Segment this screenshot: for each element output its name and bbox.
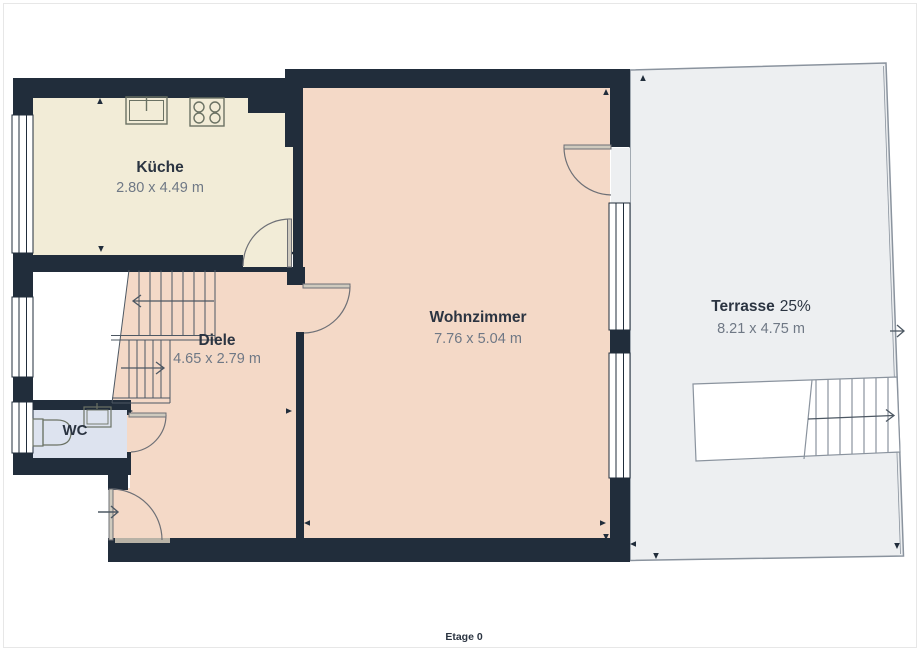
- terrace-door-floor: [611, 148, 630, 203]
- diele-label: Diele: [198, 332, 235, 349]
- diele-floor: [130, 272, 296, 538]
- wall-kueche-wohnzimmer: [293, 113, 303, 267]
- wall-kueche-notch: [248, 98, 293, 113]
- wall-left-3: [13, 377, 33, 402]
- wc-label: WC: [63, 422, 88, 439]
- kueche-dims: 2.80 x 4.49 m: [116, 180, 204, 196]
- terrasse-dims: 8.21 x 4.75 m: [717, 321, 805, 337]
- wall-diele-wohnzimmer: [296, 332, 304, 538]
- window-wc-left: [12, 402, 33, 453]
- diele-wohnzimmer-door-leaf: [303, 284, 350, 288]
- wall-right-top: [610, 88, 630, 147]
- terrasse-name: Terrasse: [711, 298, 775, 315]
- wall-bottom: [108, 538, 630, 562]
- kueche-door-floor: [243, 255, 287, 268]
- window-wohnzimmer-right-2: [609, 353, 630, 478]
- entry-door-leaf: [109, 489, 113, 540]
- diele-dims: 4.65 x 2.79 m: [173, 351, 261, 367]
- floorplan-drawing: Küche 2.80 x 4.49 m Wohnzimmer 7.76 x 5.…: [0, 0, 920, 651]
- wall-wc-bottom: [13, 458, 131, 475]
- wall-entry-stub: [108, 475, 128, 490]
- wall-kueche-top: [13, 78, 285, 98]
- floor-level-label: Etage 0: [445, 631, 483, 643]
- window-void-left: [12, 297, 33, 377]
- kueche-label: Küche: [136, 159, 184, 176]
- terrasse-share: 25%: [780, 298, 811, 315]
- wohnzimmer-dims: 7.76 x 5.04 m: [434, 331, 522, 347]
- window-kueche-left: [12, 115, 33, 253]
- wall-kueche-bottom: [13, 255, 243, 272]
- wc-door-floor: [127, 413, 131, 455]
- entry-floor: [110, 488, 135, 538]
- diele-door-floor: [296, 285, 304, 332]
- wall-wohnzimmer-top: [285, 69, 630, 88]
- wohnzimmer-label: Wohnzimmer: [429, 309, 526, 326]
- terrasse-label: Terrasse25%: [711, 298, 811, 315]
- wall-right-mid: [610, 330, 630, 353]
- wall-wc-jamb-bottom: [127, 452, 131, 458]
- kueche-floor: [33, 98, 293, 255]
- wall-left-1: [13, 98, 33, 115]
- wall-kueche-door-sill: [243, 267, 287, 272]
- terrace-stair-outline: [693, 377, 900, 461]
- wall-junction-chunk: [287, 267, 305, 285]
- terrace-door-leaf: [564, 145, 611, 149]
- kueche-door-leaf: [288, 219, 292, 267]
- floorplan-canvas: Küche 2.80 x 4.49 m Wohnzimmer 7.76 x 5.…: [0, 0, 920, 651]
- wc-door-leaf: [129, 413, 166, 417]
- terrace-stairs: [693, 377, 900, 461]
- window-wohnzimmer-right-1: [609, 203, 630, 330]
